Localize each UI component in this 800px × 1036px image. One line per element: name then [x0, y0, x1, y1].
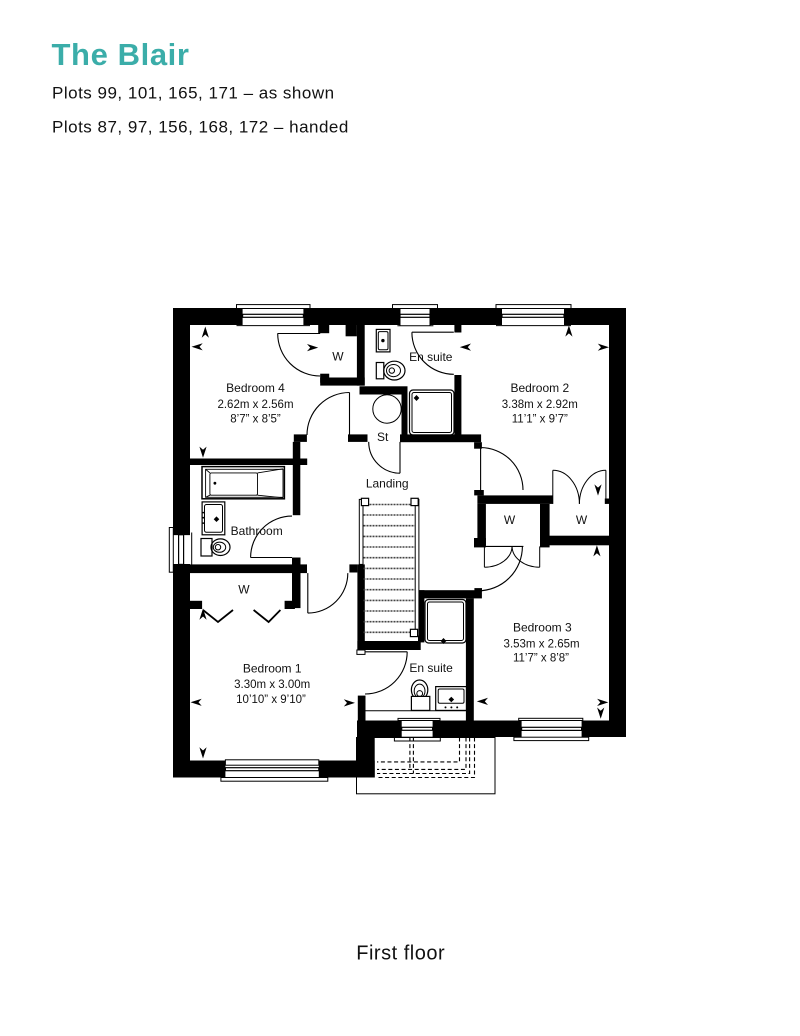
svg-text:Bedroom 2: Bedroom 2 [510, 381, 569, 395]
svg-text:St: St [377, 430, 389, 444]
svg-text:Bedroom 1: Bedroom 1 [243, 661, 302, 675]
svg-text:W: W [332, 350, 344, 364]
svg-text:3.53m x 2.65m: 3.53m x 2.65m [504, 638, 580, 650]
svg-text:W: W [576, 513, 588, 527]
svg-text:11’7” x 8’8”: 11’7” x 8’8” [513, 652, 569, 664]
svg-text:3.30m x 3.00m: 3.30m x 3.00m [234, 679, 310, 691]
svg-text:11’1” x 9’7”: 11’1” x 9’7” [512, 413, 568, 425]
svg-text:2.62m x 2.56m: 2.62m x 2.56m [217, 399, 293, 411]
svg-text:10’10” x 9’10”: 10’10” x 9’10” [236, 694, 306, 706]
svg-text:Bedroom 3: Bedroom 3 [513, 620, 572, 634]
svg-text:Plots 99, 101, 165, 171 – as s: Plots 99, 101, 165, 171 – as shown [52, 84, 335, 103]
svg-text:The Blair: The Blair [52, 37, 190, 72]
svg-text:W: W [238, 583, 250, 597]
svg-text:8’7” x 8’5”: 8’7” x 8’5” [230, 413, 281, 425]
svg-text:3.38m x 2.92m: 3.38m x 2.92m [502, 399, 578, 411]
svg-text:Bathroom: Bathroom [231, 524, 283, 538]
svg-text:Plots 87, 97, 156, 168, 172 –: Plots 87, 97, 156, 168, 172 – handed [52, 117, 349, 136]
svg-text:First floor: First floor [356, 943, 445, 965]
svg-text:Landing: Landing [366, 476, 409, 490]
svg-text:Bedroom 4: Bedroom 4 [226, 381, 285, 395]
svg-text:En suite: En suite [409, 350, 453, 364]
svg-text:W: W [504, 513, 516, 527]
svg-text:En suite: En suite [409, 661, 453, 675]
